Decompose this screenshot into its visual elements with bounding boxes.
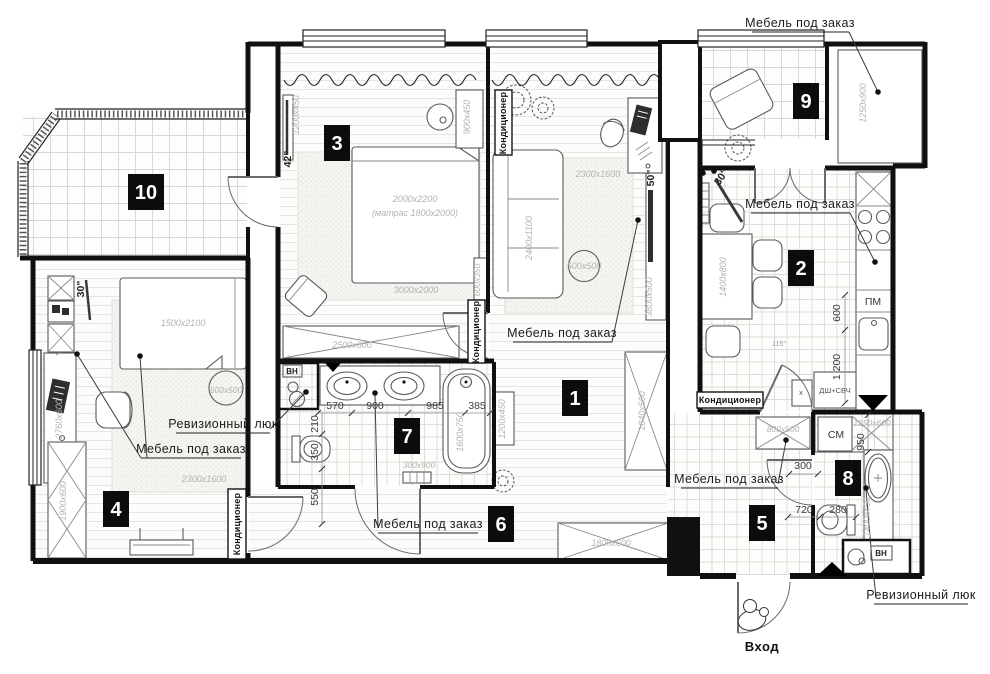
dim-720: 720 — [795, 504, 813, 516]
dim-600: 600 — [831, 304, 843, 322]
label-sofa: 2400x1100 — [524, 216, 534, 261]
label-bed3-mattress: (матрас 1800x2000) — [372, 208, 458, 218]
bathtub — [443, 369, 490, 473]
label-wardrobe-living: 1840x500 — [637, 391, 647, 431]
dim-300: 300 — [794, 460, 812, 472]
label-bath-tub7: 1600x750 — [455, 412, 465, 452]
dim-280: 280 — [829, 504, 847, 516]
note-custom-furniture: Мебель под заказ — [373, 517, 483, 531]
label-hall-shelf: 800x500 — [767, 424, 800, 434]
dim-985: 985 — [426, 400, 444, 412]
label-pouf4: 500x500 — [210, 385, 243, 395]
dim-900: 900 — [366, 400, 384, 412]
window — [29, 350, 41, 485]
dim-570: 570 — [326, 400, 344, 412]
badge-room9-number: 9 — [800, 91, 811, 113]
label-shelf3b: 600x350 — [472, 263, 482, 296]
badge-room2-number: 2 — [795, 258, 806, 280]
label-bed3-size: 2000x2200 — [392, 194, 438, 204]
note-inspection-hatch: Ревизионный люк — [168, 417, 278, 431]
tv-50-label: 50" — [645, 170, 657, 187]
note-custom-furniture: Мебель под заказ — [745, 197, 855, 211]
floor-plan-page: 2000x2200 (матрас 1800x2000) 3000x2000 2… — [0, 0, 990, 674]
water-heater-label-bath7: ВН — [286, 367, 298, 376]
kitchen-counter — [856, 172, 891, 412]
ac-label: Кондиционер — [498, 92, 508, 155]
badge-room10-number: 10 — [135, 182, 157, 204]
label-bath-tub8: 1400x450 — [862, 497, 872, 537]
washing-machine-label: СМ — [828, 429, 844, 441]
label-desk4: 2760x600 — [54, 399, 64, 440]
dim-350: 350 — [309, 443, 321, 461]
label-loggia-cabinet: 1250x900 — [858, 83, 868, 123]
badge-room7-number: 7 — [401, 426, 412, 448]
note-inspection-hatch: Ревизионный люк — [866, 588, 976, 602]
dim-385: 385 — [468, 400, 486, 412]
appliance-cabinet — [48, 301, 74, 322]
label-rug3: 3000x2000 — [394, 285, 439, 295]
note-custom-furniture: Мебель под заказ — [745, 16, 855, 30]
shaft-column — [660, 42, 700, 140]
dishwasher-label: ПМ — [865, 296, 881, 308]
badge-room6-number: 6 — [495, 514, 506, 536]
dim-1200: 1 200 — [831, 354, 843, 380]
kitchen-chair — [706, 326, 740, 357]
structural-column — [667, 517, 700, 576]
dim-550: 550 — [309, 488, 321, 506]
label-hall-cabinet: 1200x450 — [497, 399, 507, 439]
label-bed4: 1500x2100 — [161, 318, 206, 328]
kitchen-chair — [753, 240, 782, 271]
dim-950: 950 — [855, 433, 867, 451]
tv-30-room4-label: 30" — [75, 281, 87, 298]
window — [486, 30, 587, 47]
badge-room4-number: 4 — [110, 499, 122, 521]
label-tv-unit3: 1200x450 — [291, 95, 301, 135]
note-custom-furniture: Мебель под заказ — [674, 472, 784, 486]
floor-plan-drawing: 2000x2200 (матрас 1800x2000) 3000x2000 2… — [0, 0, 990, 674]
note-custom-furniture: Мебель под заказ — [507, 326, 617, 340]
badge-room5-number: 5 — [756, 513, 767, 535]
label-wardrobe3: 2500x600 — [331, 340, 372, 350]
label-coffee-table: 500x500 — [567, 261, 602, 271]
ac-label: Кондиционер — [699, 395, 762, 405]
label-wardrobe4: 1900x600 — [58, 481, 68, 521]
note-custom-furniture: Мебель под заказ — [136, 442, 246, 456]
label-kitchen-table: 1400x800 — [718, 257, 728, 297]
label-shelf3: 900x450 — [462, 100, 472, 135]
badge-room1-number: 1 — [569, 388, 580, 410]
oven-microwave-label: ДШ+СВЧ — [819, 386, 850, 395]
loggia-cabinet — [838, 50, 922, 163]
label-rug4: 2300x1600 — [181, 474, 227, 484]
badge-room3-number: 3 — [331, 133, 342, 155]
bedside-table — [427, 104, 453, 130]
desk-chair-room4 — [96, 392, 132, 428]
dim-210: 210 — [309, 415, 321, 433]
door-angle-label: 115° — [772, 340, 786, 348]
entrance-label: Вход — [745, 639, 780, 654]
kitchen-chair — [753, 277, 782, 308]
label-bath-mat: 300x900 — [403, 460, 436, 470]
label-bath-counter: 1250x600 — [853, 418, 891, 428]
ac-label: Кондиционер — [471, 301, 481, 364]
label-rug-living: 2300x1600 — [575, 169, 621, 179]
tv-50-icon — [648, 190, 653, 262]
label-hall-wardrobe: 1800x600 — [591, 538, 631, 548]
window — [303, 30, 445, 47]
water-heater-label-bath8: ВН — [875, 549, 887, 558]
label-media-unit: 3800x500 — [644, 277, 654, 317]
badge-room8-number: 8 — [842, 468, 853, 490]
tv-42-label: 42" — [282, 151, 294, 168]
ac-label: Кондиционер — [232, 493, 242, 556]
sink-mark-label: х — [799, 388, 803, 397]
